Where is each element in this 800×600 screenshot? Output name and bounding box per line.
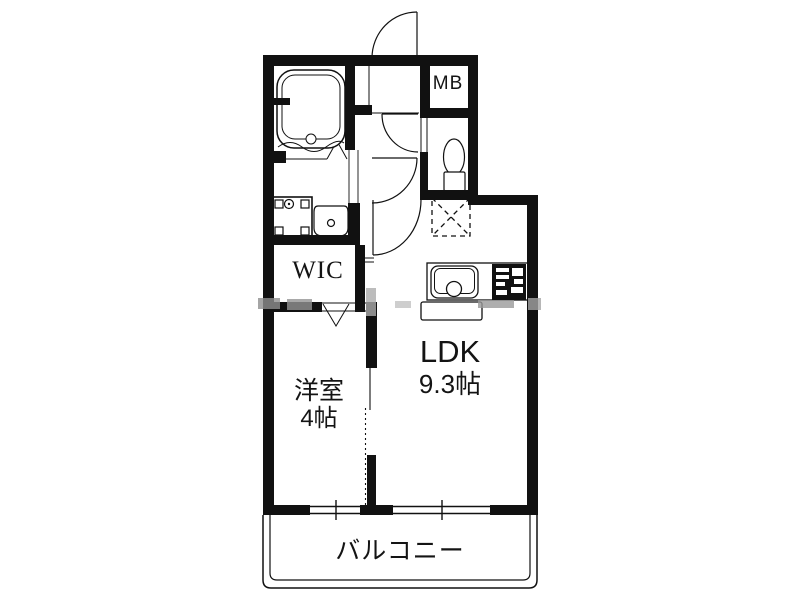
wall-partition-bottom: [367, 455, 376, 515]
room-mb: [430, 66, 468, 108]
watermark-fragment: [366, 288, 376, 316]
room-bathroom: [274, 66, 345, 151]
entrance-door: [372, 12, 417, 58]
wall-top: [263, 55, 478, 66]
room-washroom: [274, 163, 348, 235]
room-toilet: [428, 118, 468, 190]
wall-bottom-1: [263, 505, 310, 515]
room-western: [274, 312, 366, 505]
wall-bath-divider-stub: [263, 151, 286, 163]
floor-plan: MB WIC 洋室 4帖 LDK 9.3帖 バルコニー: [0, 0, 800, 600]
wall-bottom-3: [490, 505, 538, 515]
wall-bath-right: [345, 55, 355, 150]
watermark-fragment: [528, 298, 541, 310]
room-hall: [357, 66, 420, 246]
room-wic: [274, 245, 355, 302]
wall-bottom-2: [360, 505, 393, 515]
wall-ldk-right: [527, 195, 538, 515]
wall-washroom-bottom: [263, 235, 357, 245]
room-balcony: [271, 515, 529, 580]
wall-left: [263, 55, 274, 515]
room-ldk: [377, 205, 527, 505]
wall-mb-bottom: [420, 108, 478, 118]
